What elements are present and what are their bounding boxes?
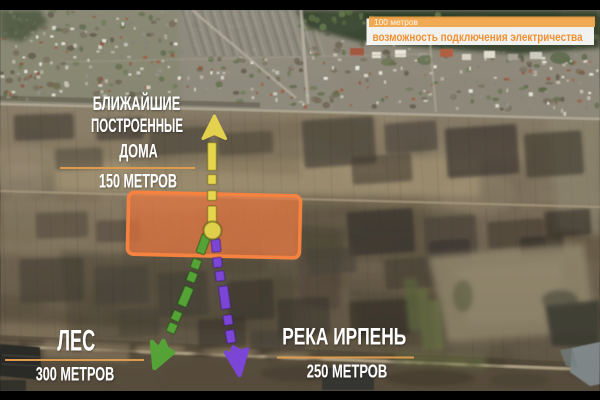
svg-text:РЕКА ИРПЕНЬ: РЕКА ИРПЕНЬ	[282, 324, 406, 351]
svg-text:БЛИЖАЙШИЕ: БЛИЖАЙШИЕ	[93, 91, 181, 115]
svg-text:100 метров: 100 метров	[374, 17, 418, 27]
svg-text:ПОСТРОЕННЫЕ: ПОСТРОЕННЫЕ	[91, 115, 183, 137]
svg-text:ЛЕС: ЛЕС	[57, 325, 95, 358]
svg-text:300 МЕТРОВ: 300 МЕТРОВ	[36, 363, 115, 385]
svg-text:ДОМА: ДОМА	[119, 141, 158, 163]
svg-text:150 МЕТРОВ: 150 МЕТРОВ	[99, 171, 177, 193]
svg-text:возможность подключения электр: возможность подключения электричества	[373, 30, 583, 44]
svg-text:250 МЕТРОВ: 250 МЕТРОВ	[307, 361, 388, 382]
